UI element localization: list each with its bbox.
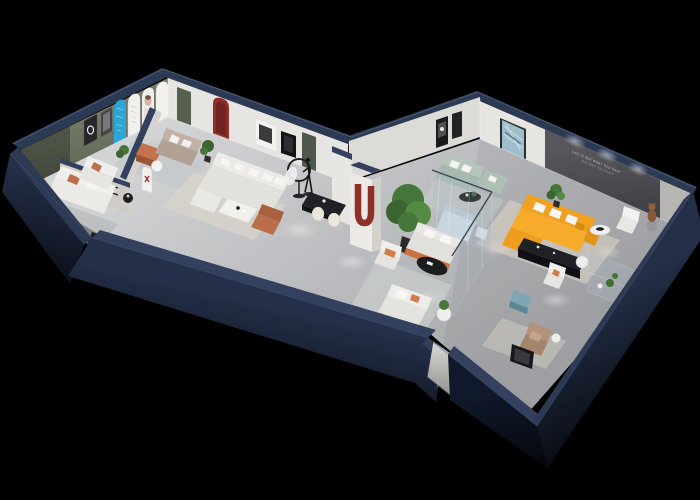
display-cactus-1	[606, 279, 614, 287]
blue-arch-panel	[114, 100, 126, 144]
white-arch-panel-text	[128, 94, 140, 137]
side-table-vase	[127, 195, 130, 198]
red-arch-inner	[216, 102, 226, 136]
display-vase	[598, 284, 603, 289]
junction-art-circle	[440, 127, 444, 131]
round-table-white	[152, 161, 163, 172]
dining-chair-2	[328, 213, 340, 227]
white-side-table	[576, 256, 588, 268]
arches-plant-2	[200, 147, 208, 155]
plant-small-2	[116, 150, 124, 158]
dining-chair-1	[312, 207, 324, 221]
black-frame-canvas	[284, 135, 293, 153]
side-table-plant	[439, 300, 449, 310]
portrait-hair	[145, 95, 151, 100]
dining-decor	[322, 199, 325, 202]
small-side-table	[552, 334, 561, 343]
showroom-floorplan-render: LIFE IS NOT WHAT YOU HAVE BUT WHAT YOU E…	[0, 0, 700, 500]
table-black-tray	[596, 227, 604, 231]
right-console-decor-2	[553, 252, 555, 254]
table-decor-white	[243, 210, 245, 212]
right-console-decor-1	[537, 246, 540, 249]
sage-door-1	[177, 87, 191, 126]
table-decor-black	[236, 206, 240, 210]
side-table-black	[123, 193, 133, 203]
display-cactus-2	[612, 273, 618, 279]
junction-art-2	[452, 111, 462, 139]
isometric-scene: LIFE IS NOT WHAT YOU HAVE BUT WHAT YOU E…	[0, 0, 700, 500]
